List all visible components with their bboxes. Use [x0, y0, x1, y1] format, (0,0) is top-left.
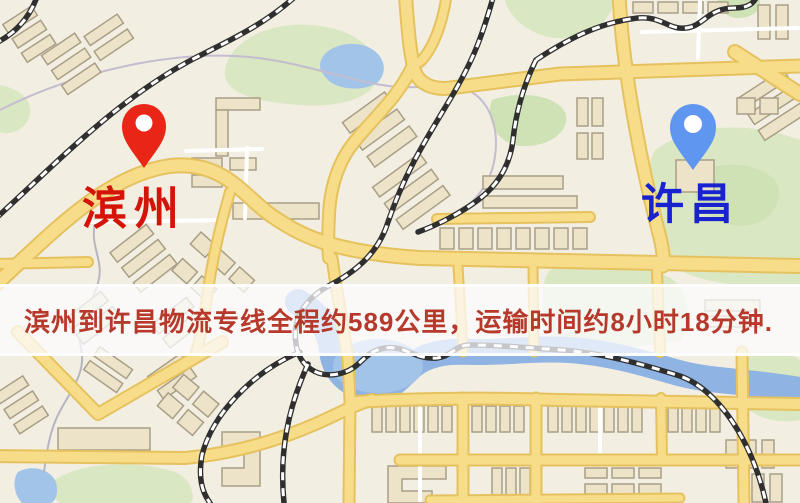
map-canvas: 滨州 许昌 滨州到许昌物流专线全程约589公里，运输时间约8小时18分钟. [0, 0, 800, 503]
route-info-banner: 滨州到许昌物流专线全程约589公里，运输时间约8小时18分钟. [0, 284, 800, 356]
origin-pin-icon [122, 104, 166, 168]
route-info-text: 滨州到许昌物流专线全程约589公里，运输时间约8小时18分钟. [0, 302, 773, 339]
map-image [0, 0, 800, 503]
